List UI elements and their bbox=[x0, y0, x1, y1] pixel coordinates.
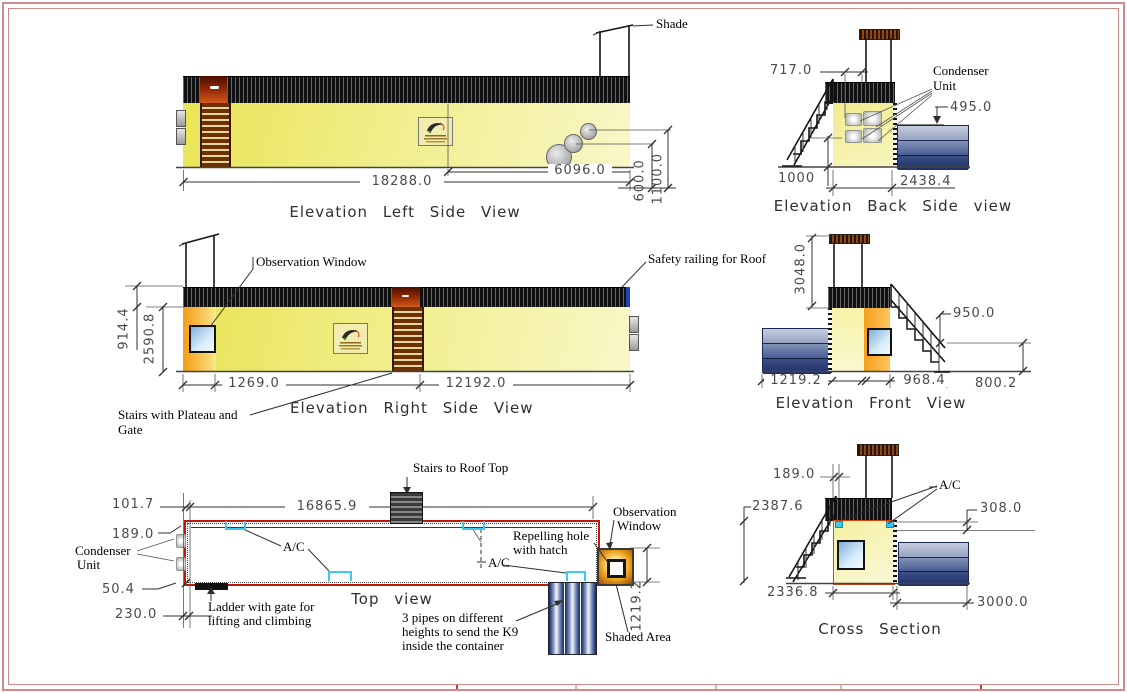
dim-600: 600.0 bbox=[634, 160, 647, 202]
front-view-title: Elevation Front View bbox=[771, 394, 971, 412]
cross-ac-label: A/C bbox=[939, 478, 961, 491]
dim-101: 101.7 bbox=[112, 498, 154, 511]
pipes-label-line1: 3 pipes on different bbox=[402, 611, 503, 624]
dim-950: 950.0 bbox=[953, 307, 995, 320]
dim-50: 50.4 bbox=[102, 583, 135, 596]
stairs-plateau-label-line2: Gate bbox=[118, 423, 143, 436]
ac-unit-bracket-1 bbox=[225, 521, 246, 530]
dim-230: 230.0 bbox=[115, 608, 157, 621]
roof-stairs-label: Stairs to Roof Top bbox=[413, 461, 508, 474]
dim-3048: 3048.0 bbox=[795, 245, 808, 295]
pipes-label-line3: inside the container bbox=[402, 639, 504, 652]
safety-railing-label: Safety railing for Roof bbox=[648, 252, 766, 265]
shaded-area-label: Shaded Area bbox=[605, 630, 671, 643]
top-condenser-label-line1: Condenser bbox=[75, 544, 131, 557]
dim-2590: 2590.8 bbox=[144, 313, 157, 365]
drawing-sheet: Shade 18288.0 6096.0 600.0 1100.0 Elevat… bbox=[0, 0, 1127, 693]
dim-717: 717.0 bbox=[770, 64, 812, 77]
repelling-label-line1: Repelling hole bbox=[513, 529, 589, 542]
dim-968: 968.4 bbox=[895, 374, 954, 387]
dim-914: 914.4 bbox=[118, 307, 131, 351]
dim-1100: 1100.0 bbox=[652, 157, 665, 205]
dim-2387: 2387.6 bbox=[752, 500, 804, 513]
dim-1269: 1269.0 bbox=[222, 377, 286, 390]
ac-label-1: A/C bbox=[283, 540, 305, 553]
ac-label-2: A/C bbox=[488, 556, 510, 569]
dim-18288: 18288.0 bbox=[360, 175, 444, 188]
back-view-title: Elevation Back Side view bbox=[773, 197, 1013, 215]
dim-189-cross: 189.0 bbox=[773, 468, 815, 481]
top-observation-label-line2: Window bbox=[617, 519, 661, 532]
dim-495: 495.0 bbox=[950, 101, 992, 114]
cross-section-title: Cross Section bbox=[810, 620, 950, 638]
ac-unit-bracket-3 bbox=[462, 521, 485, 530]
dim-1219-front: 1219.2 bbox=[764, 374, 828, 387]
left-view-title: Elevation Left Side View bbox=[285, 203, 525, 221]
top-view-roof-stairs-block bbox=[390, 492, 423, 524]
condenser-label-line2: Unit bbox=[933, 79, 956, 92]
dim-308: 308.0 bbox=[980, 502, 1022, 515]
dim-6096: 6096.0 bbox=[548, 164, 612, 177]
top-condenser-label-line2: Unit bbox=[77, 558, 100, 571]
condenser-label-line1: Condenser bbox=[933, 64, 989, 77]
ac-unit-bracket-2 bbox=[328, 571, 352, 581]
right-view-title: Elevation Right Side View bbox=[290, 399, 530, 417]
repelling-label-line2: with hatch bbox=[513, 543, 568, 556]
dim-2438: 2438.4 bbox=[900, 175, 952, 188]
top-view-title: Top view bbox=[342, 590, 442, 608]
ac-unit-bracket-4 bbox=[566, 571, 586, 581]
observation-window-label: Observation Window bbox=[256, 255, 367, 268]
dim-1219-top: 1219.2 bbox=[631, 582, 644, 632]
dim-189-top: 189.0 bbox=[112, 528, 154, 541]
dim-1000: 1000 bbox=[778, 172, 815, 185]
ladder-label-line2: lifting and climbing bbox=[208, 614, 311, 627]
dim-12192: 12192.0 bbox=[439, 377, 513, 390]
right-view-lines bbox=[125, 234, 646, 415]
stairs-plateau-label-line1: Stairs with Plateau and bbox=[118, 408, 238, 421]
dim-3000: 3000.0 bbox=[977, 596, 1029, 609]
shade-label: Shade bbox=[656, 17, 688, 30]
pipes-label-line2: heights to send the K9 bbox=[402, 625, 518, 638]
ladder-label-line1: Ladder with gate for bbox=[208, 600, 314, 613]
dim-2336: 2336.8 bbox=[767, 586, 819, 599]
dim-16865: 16865.9 bbox=[285, 500, 369, 513]
top-observation-label-line1: Observation bbox=[613, 505, 677, 518]
dim-800: 800.2 bbox=[975, 377, 1017, 390]
